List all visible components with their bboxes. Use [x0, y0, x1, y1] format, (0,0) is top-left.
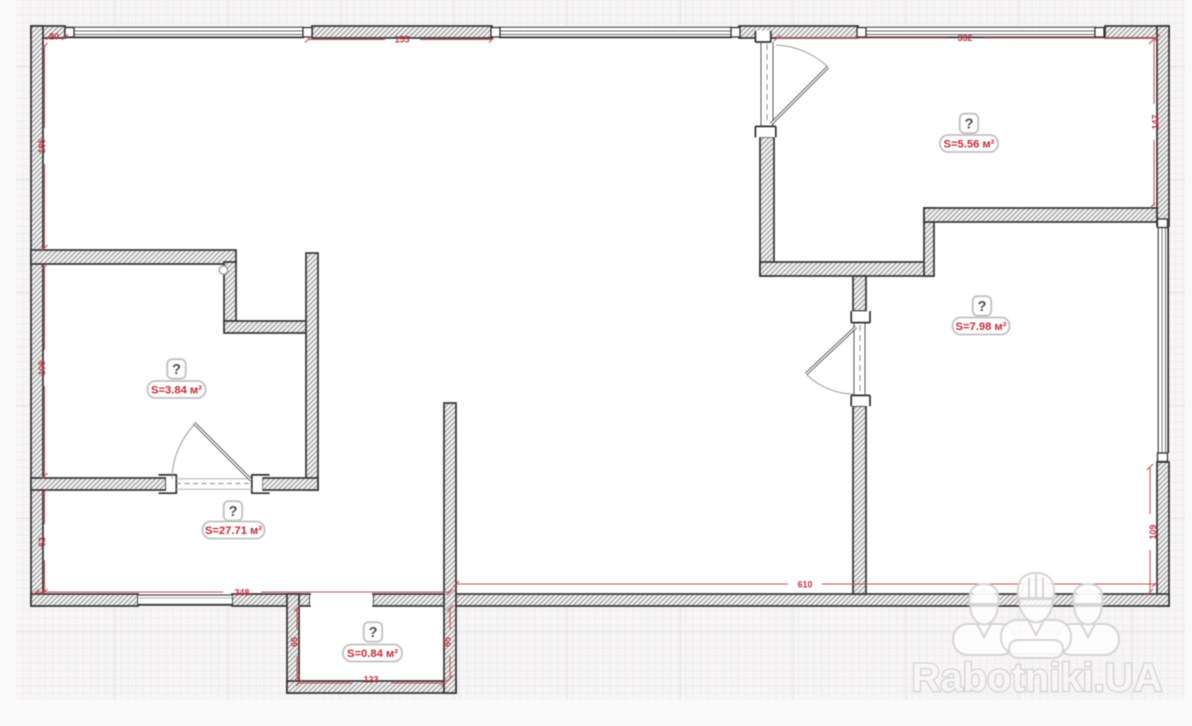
svg-text:S=27.71 м²: S=27.71 м²	[205, 525, 262, 537]
svg-text:S=7.98 м²: S=7.98 м²	[956, 321, 1007, 333]
svg-text:109: 109	[1148, 525, 1158, 540]
svg-text:185: 185	[37, 139, 47, 154]
svg-text:20: 20	[49, 32, 59, 42]
svg-text:?: ?	[229, 504, 238, 520]
svg-text:?: ?	[369, 625, 378, 641]
svg-text:?: ?	[965, 117, 974, 133]
svg-text:108: 108	[37, 361, 47, 376]
svg-text:Rabotniki.UA: Rabotniki.UA	[911, 656, 1162, 700]
svg-text:65: 65	[290, 637, 300, 647]
svg-text:332: 332	[958, 33, 973, 43]
svg-text:S=3.84 м²: S=3.84 м²	[151, 385, 202, 397]
svg-text:?: ?	[978, 299, 987, 315]
svg-text:65: 65	[443, 637, 453, 647]
svg-text:S=5.56 м²: S=5.56 м²	[944, 139, 995, 151]
svg-text:147: 147	[1151, 115, 1161, 130]
svg-text:62: 62	[37, 537, 47, 547]
svg-text:S=0.84 м²: S=0.84 м²	[347, 648, 398, 660]
svg-text:123: 123	[364, 675, 379, 685]
svg-text:348: 348	[235, 588, 250, 598]
svg-text:?: ?	[172, 362, 181, 378]
svg-text:155: 155	[395, 35, 410, 45]
svg-text:610: 610	[798, 580, 813, 590]
